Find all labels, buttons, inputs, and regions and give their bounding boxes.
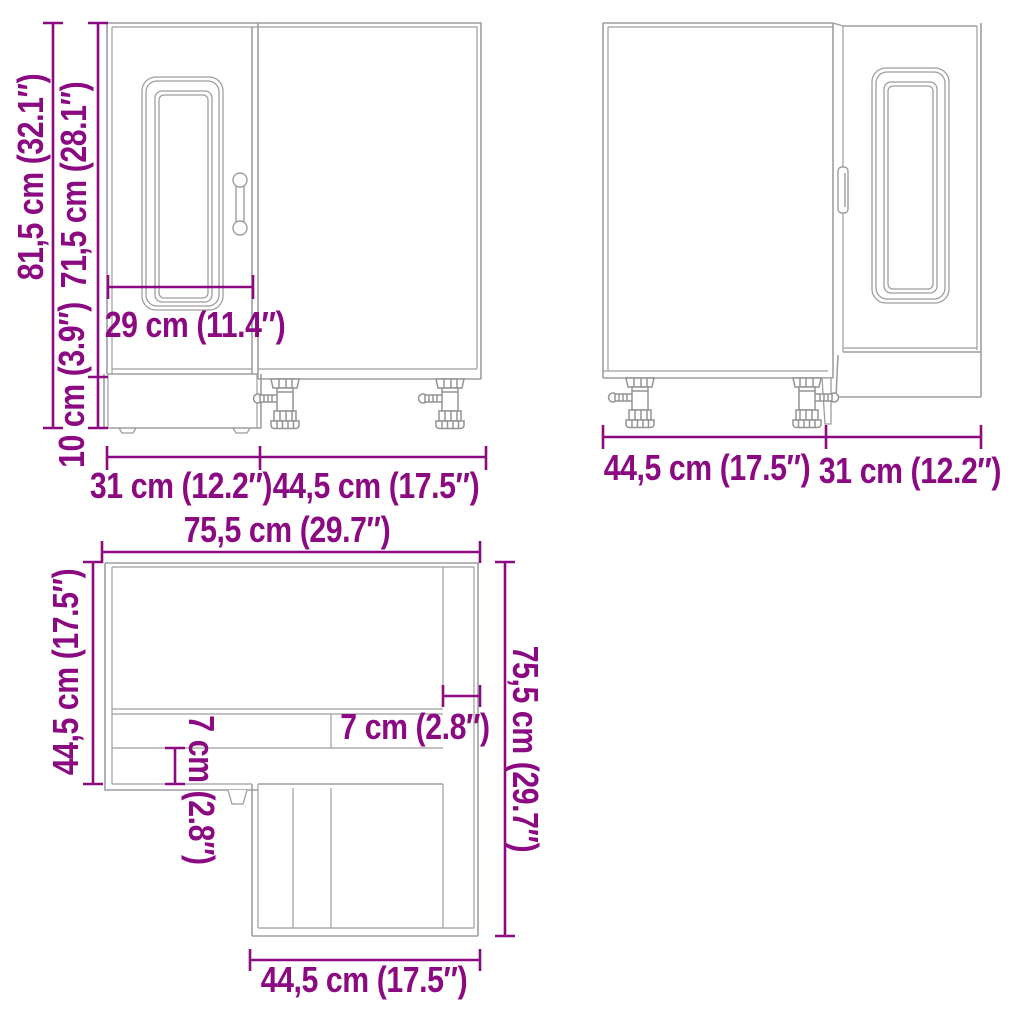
back-plinth <box>822 353 981 424</box>
top-view-dimension-lines <box>83 541 515 971</box>
front-door-handle-icon <box>233 173 247 235</box>
front-right-width-label: 44,5 cm (17.5″) <box>273 468 480 504</box>
back-view-dimension-lines <box>603 425 981 449</box>
top-view-drawing <box>105 563 478 936</box>
front-view-drawing <box>104 23 481 433</box>
top-bottom-width-label: 44,5 cm (17.5″) <box>261 962 468 998</box>
back-cabinet-outline <box>603 23 981 378</box>
back-right-width-label: 31 cm (12.2″) <box>819 453 1001 489</box>
top-width-label: 75,5 cm (29.7″) <box>184 512 391 548</box>
top-right-depth-label: 75,5 cm (29.7″) <box>507 646 543 853</box>
diagram-canvas <box>0 0 1024 1024</box>
front-leg-height-label: 10 cm (3.9″) <box>54 302 90 468</box>
front-plinth <box>104 374 261 433</box>
top-view-outline <box>105 563 478 936</box>
front-total-height-label: 81,5 cm (32.1″) <box>13 74 49 281</box>
back-door-panel <box>872 68 949 303</box>
dimension-diagram: 81,5 cm (32.1″) 71,5 cm (28.1″) 10 cm (3… <box>0 0 1024 1024</box>
front-door-width-label: 29 cm (11.4″) <box>105 307 286 343</box>
top-left-depth-label: 44,5 cm (17.5″) <box>48 569 84 776</box>
back-door-handle-icon <box>838 167 848 213</box>
top-corner-offset-vertical-label: 7 cm (2.8″) <box>183 715 219 864</box>
top-corner-offset-horizontal-label: 7 cm (2.8″) <box>340 709 489 745</box>
front-view-dimension-lines <box>43 23 486 470</box>
back-left-width-label: 44,5 cm (17.5″) <box>604 450 811 486</box>
front-door-panel <box>142 77 223 310</box>
back-view-drawing <box>603 23 981 428</box>
front-left-width-label: 31 cm (12.2″) <box>90 468 272 504</box>
front-cabinet-height-label: 71,5 cm (28.1″) <box>56 82 92 289</box>
